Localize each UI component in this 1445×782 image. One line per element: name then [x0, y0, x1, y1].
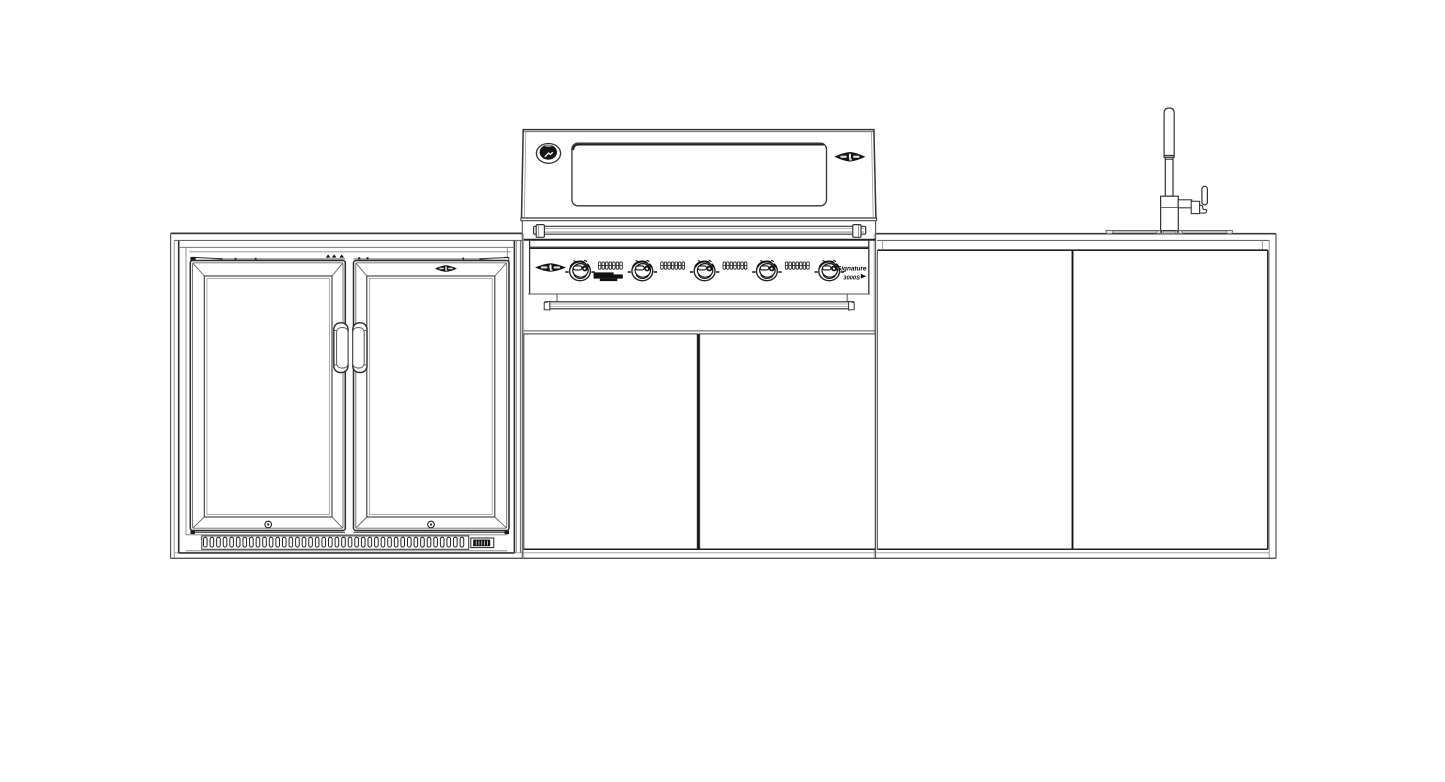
svg-text:3000S: 3000S — [843, 275, 860, 281]
svg-text:Signature: Signature — [837, 265, 867, 272]
